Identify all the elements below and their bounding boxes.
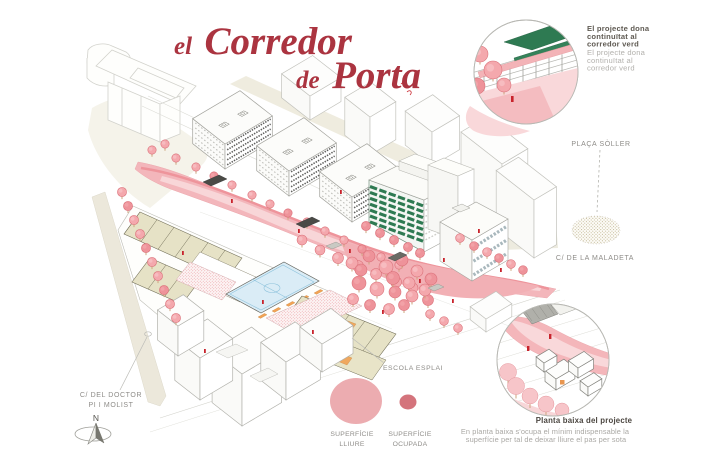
svg-text:LLIURE: LLIURE xyxy=(339,441,365,448)
svg-text:corredor verd: corredor verd xyxy=(587,64,635,73)
svg-text:superfície per tal de deixar l: superfície per tal de deixar lliure el p… xyxy=(466,435,627,444)
svg-text:PLAÇA SÒLLER: PLAÇA SÒLLER xyxy=(571,139,630,148)
svg-text:OCUPADA: OCUPADA xyxy=(393,441,428,448)
svg-text:SUPERFÍCIE: SUPERFÍCIE xyxy=(330,429,374,438)
svg-text:C/ DE LA MALADETA: C/ DE LA MALADETA xyxy=(556,255,634,262)
svg-text:N: N xyxy=(93,413,99,423)
svg-text:C/ DEL DOCTOR: C/ DEL DOCTOR xyxy=(80,392,142,399)
svg-text:SUPERFÍCIE: SUPERFÍCIE xyxy=(388,429,432,438)
svg-text:ESCOLA ESPLAI: ESCOLA ESPLAI xyxy=(383,365,443,372)
svg-text:PI I MOLIST: PI I MOLIST xyxy=(88,402,133,409)
svg-text:Planta baixa del projecte: Planta baixa del projecte xyxy=(536,416,633,425)
